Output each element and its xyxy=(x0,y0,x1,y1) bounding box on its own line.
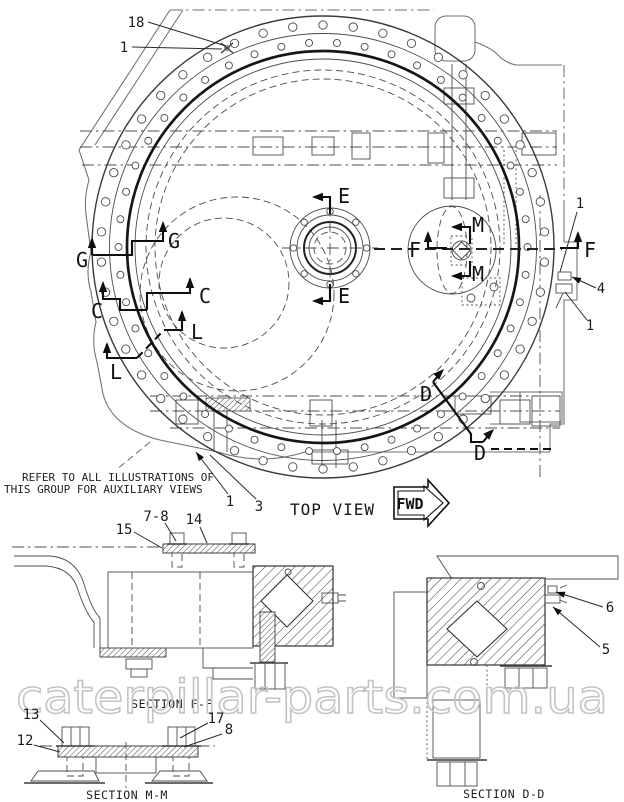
bolt-hole xyxy=(407,39,415,47)
flange-rings xyxy=(92,16,554,478)
callout-number: 8 xyxy=(225,722,233,738)
diagram-canvas: SECTION F-F SECTION M-M xyxy=(0,0,624,802)
callout-leader xyxy=(200,527,207,543)
bolt-hole xyxy=(278,444,285,451)
bolt-hole xyxy=(516,345,524,353)
bolt-hole xyxy=(494,137,501,144)
bolt-hole xyxy=(528,317,536,325)
bolt-hole xyxy=(407,446,415,454)
bolt-hole xyxy=(97,258,105,266)
bolt-hole xyxy=(319,21,327,29)
bolt-hole xyxy=(379,29,387,37)
note-line-2: THIS GROUP FOR AUXILIARY VIEWS xyxy=(4,483,203,496)
top-view xyxy=(79,10,577,480)
bolt-hole xyxy=(459,393,466,400)
bolt-hole xyxy=(540,228,548,236)
bolt-hole xyxy=(540,258,548,266)
callout-number: 17 xyxy=(208,711,225,727)
bolt-hole xyxy=(161,114,168,121)
bolt-hole xyxy=(379,457,387,465)
bolt-hole xyxy=(101,198,109,206)
bolt-hole xyxy=(349,463,357,471)
callout-number: 4 xyxy=(597,281,605,297)
bolt-hole xyxy=(361,444,368,451)
hub-bolt-hole xyxy=(301,271,307,277)
bolt-hole xyxy=(117,271,124,278)
bolt-hole xyxy=(516,141,524,149)
ff-valve-body xyxy=(108,572,253,648)
cut-arrow xyxy=(103,342,111,353)
section-letter: G xyxy=(168,229,180,253)
bolt-hole xyxy=(481,394,489,402)
bolt-hole xyxy=(259,29,267,37)
cut-arrow xyxy=(186,277,194,288)
cut-arrow xyxy=(312,297,323,305)
callout-leader xyxy=(565,292,587,320)
bolt-hole xyxy=(437,76,444,83)
bolt-hole xyxy=(259,457,267,465)
bolt-hole xyxy=(522,271,529,278)
bolt-hole xyxy=(132,162,139,169)
callout-number: 1 xyxy=(226,494,234,510)
bolt-hole xyxy=(251,51,258,58)
cut-arrow xyxy=(451,223,462,231)
section-mm-label: SECTION M-M xyxy=(86,788,168,802)
section-letter: C xyxy=(199,284,211,308)
bolt-hole xyxy=(289,463,297,471)
bolt-hole xyxy=(115,244,122,251)
callout-leader xyxy=(180,723,208,738)
bolt-hole xyxy=(500,371,508,379)
hub-bolt-hole xyxy=(353,271,359,277)
bolt-hole xyxy=(202,411,209,418)
section-letter: D xyxy=(474,441,486,465)
bolt-hole xyxy=(522,216,529,223)
bolt-hole xyxy=(437,411,444,418)
section-letter: M xyxy=(472,213,484,237)
callout-number: 14 xyxy=(186,512,203,528)
bolt-hole xyxy=(528,168,536,176)
bolt-holes xyxy=(97,21,548,473)
dd-bearing-block xyxy=(427,578,545,666)
ff-callouts: 157-814 xyxy=(116,509,207,548)
bolt-hole xyxy=(180,94,187,101)
section-letter: L xyxy=(110,360,122,384)
hub-bolt-hole xyxy=(353,219,359,225)
bolt-hole xyxy=(536,288,544,296)
bolt-hole xyxy=(179,415,187,423)
bolt-hole xyxy=(110,168,118,176)
hub-bolt-hole xyxy=(301,219,307,225)
callout-number: 1 xyxy=(120,40,128,56)
bolt-hole xyxy=(536,198,544,206)
bolt-hole xyxy=(123,188,130,195)
leader-arrow xyxy=(571,274,582,284)
callout-number: 15 xyxy=(116,522,133,538)
bolt-hole xyxy=(306,448,313,455)
callout-number: 1 xyxy=(586,318,594,334)
bolt-hole xyxy=(110,317,118,325)
callout-number: 12 xyxy=(17,733,34,749)
bolt-hole xyxy=(414,425,421,432)
section-letter: G xyxy=(76,248,88,272)
bolt-hole xyxy=(97,228,105,236)
bolt-hole xyxy=(516,188,523,195)
section-mm-view: SECTION M-M xyxy=(24,727,215,802)
bolt-hole xyxy=(434,53,442,61)
bolt-hole xyxy=(117,216,124,223)
callout-number: 13 xyxy=(23,707,40,723)
bolt-hole xyxy=(388,51,395,58)
bolt-hole xyxy=(157,394,165,402)
bolt-hole xyxy=(414,62,421,69)
callout-leader xyxy=(165,523,176,541)
callout-number: 7-8 xyxy=(143,509,168,525)
bolt-hole xyxy=(481,91,489,99)
fwd-label: FWD xyxy=(396,495,423,513)
bolt-hole xyxy=(137,115,145,123)
callout-leader xyxy=(148,22,226,46)
section-letter: F xyxy=(409,238,421,262)
callout-leader xyxy=(210,455,256,499)
bolt-hole xyxy=(225,62,232,69)
cut-arrow xyxy=(99,281,107,292)
hub-bolt-hole xyxy=(290,245,296,251)
bolt-hole xyxy=(123,299,130,306)
fwd-arrow: FWD xyxy=(394,480,449,526)
callout-number: 5 xyxy=(602,642,610,658)
section-letter: L xyxy=(191,320,203,344)
bolt-hole xyxy=(333,39,340,46)
bolt-hole xyxy=(478,373,485,380)
converter-sphere xyxy=(408,206,500,305)
section-letter: E xyxy=(338,284,350,308)
bolt-hole xyxy=(145,350,152,357)
callout-leader xyxy=(553,607,600,647)
bolt-hole xyxy=(319,465,327,473)
bolt-hole xyxy=(230,446,238,454)
bolt-hole xyxy=(180,393,187,400)
callout-number: 18 xyxy=(128,15,145,31)
bolt-hole xyxy=(507,162,514,169)
bolt-hole xyxy=(278,43,285,50)
bolt-hole xyxy=(459,71,467,79)
note-text: REFER TO ALL ILLUSTRATIONS OF THIS GROUP… xyxy=(4,471,214,496)
section-dd-label: SECTION D-D xyxy=(463,787,545,801)
bolt-hole xyxy=(203,432,211,440)
bolt-hole xyxy=(161,373,168,380)
bolt-hole xyxy=(333,448,340,455)
callout-leader xyxy=(134,532,162,548)
top-view-label: TOP VIEW xyxy=(290,500,375,519)
bolt-hole xyxy=(349,23,357,31)
dd-case-wall xyxy=(437,556,618,579)
bolt-hole xyxy=(459,94,466,101)
bolt-hole xyxy=(388,436,395,443)
section-letter: F xyxy=(584,238,596,262)
bolt-hole xyxy=(507,325,514,332)
section-letter: D xyxy=(420,382,432,406)
section-letter: C xyxy=(91,299,103,323)
bolt-hole xyxy=(122,345,130,353)
parts-diagram-page: SECTION F-F SECTION M-M xyxy=(0,0,624,802)
leader-arrow xyxy=(193,450,204,461)
bolt-hole xyxy=(494,350,501,357)
bolt-hole xyxy=(203,53,211,61)
hub-bolt-hole xyxy=(363,245,369,251)
bolt-hole xyxy=(202,76,209,83)
bolt-hole xyxy=(251,436,258,443)
bolt-hole xyxy=(306,39,313,46)
watermark-text: caterpillar-parts.com.ua xyxy=(16,670,608,724)
bolt-hole xyxy=(179,71,187,79)
cut-arrow xyxy=(178,310,186,321)
section-letter: M xyxy=(472,262,484,286)
callout-number: 3 xyxy=(255,499,263,515)
cut-arrow xyxy=(451,272,462,280)
bolt-hole xyxy=(132,325,139,332)
ff-left-bracket xyxy=(14,556,166,677)
cut-line xyxy=(147,279,190,310)
bolt-hole xyxy=(478,114,485,121)
bolt-hole xyxy=(361,43,368,50)
callout-leader xyxy=(184,734,222,747)
section-letter: E xyxy=(338,184,350,208)
bolt-hole xyxy=(145,137,152,144)
bolt-hole xyxy=(434,432,442,440)
cut-arrow xyxy=(159,221,167,232)
callout-number: 6 xyxy=(606,600,614,616)
bolt-hole xyxy=(225,425,232,432)
bolt-hole xyxy=(137,371,145,379)
bolt-hole xyxy=(516,299,523,306)
cut-arrow xyxy=(424,231,432,242)
callout-number: 1 xyxy=(576,196,584,212)
bolt-hole xyxy=(289,23,297,31)
bolt-hole xyxy=(500,115,508,123)
cut-arrow xyxy=(312,193,323,201)
cut-arrow xyxy=(574,231,582,242)
bolt-hole xyxy=(122,141,130,149)
bolt-hole xyxy=(157,91,165,99)
